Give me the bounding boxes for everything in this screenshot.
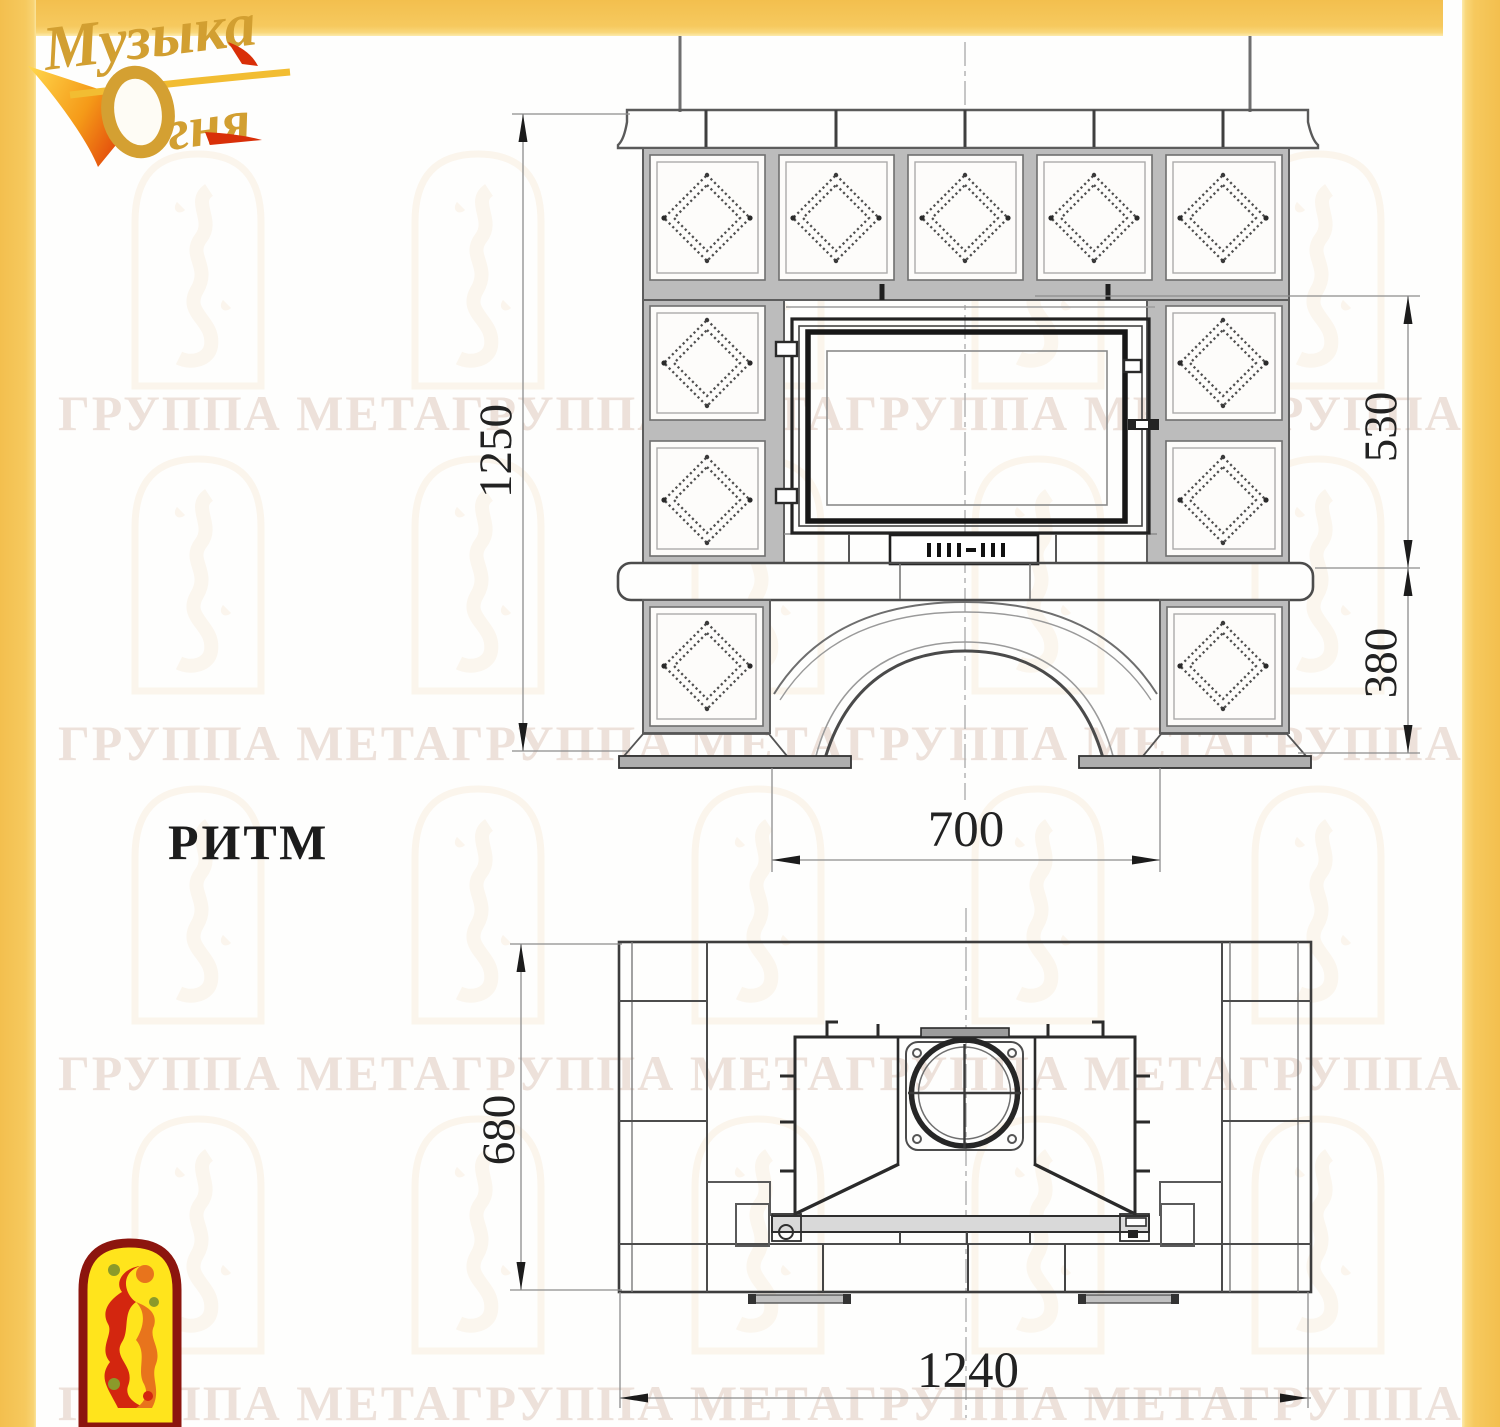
svg-text:1250: 1250 <box>470 404 522 498</box>
svg-text:680: 680 <box>473 1095 525 1166</box>
svg-text:1240: 1240 <box>917 1343 1019 1399</box>
svg-text:РИТМ: РИТМ <box>168 814 329 870</box>
svg-text:380: 380 <box>1355 628 1407 699</box>
svg-text:530: 530 <box>1355 392 1407 463</box>
svg-text:гня: гня <box>163 87 255 163</box>
svg-text:700: 700 <box>928 802 1005 858</box>
